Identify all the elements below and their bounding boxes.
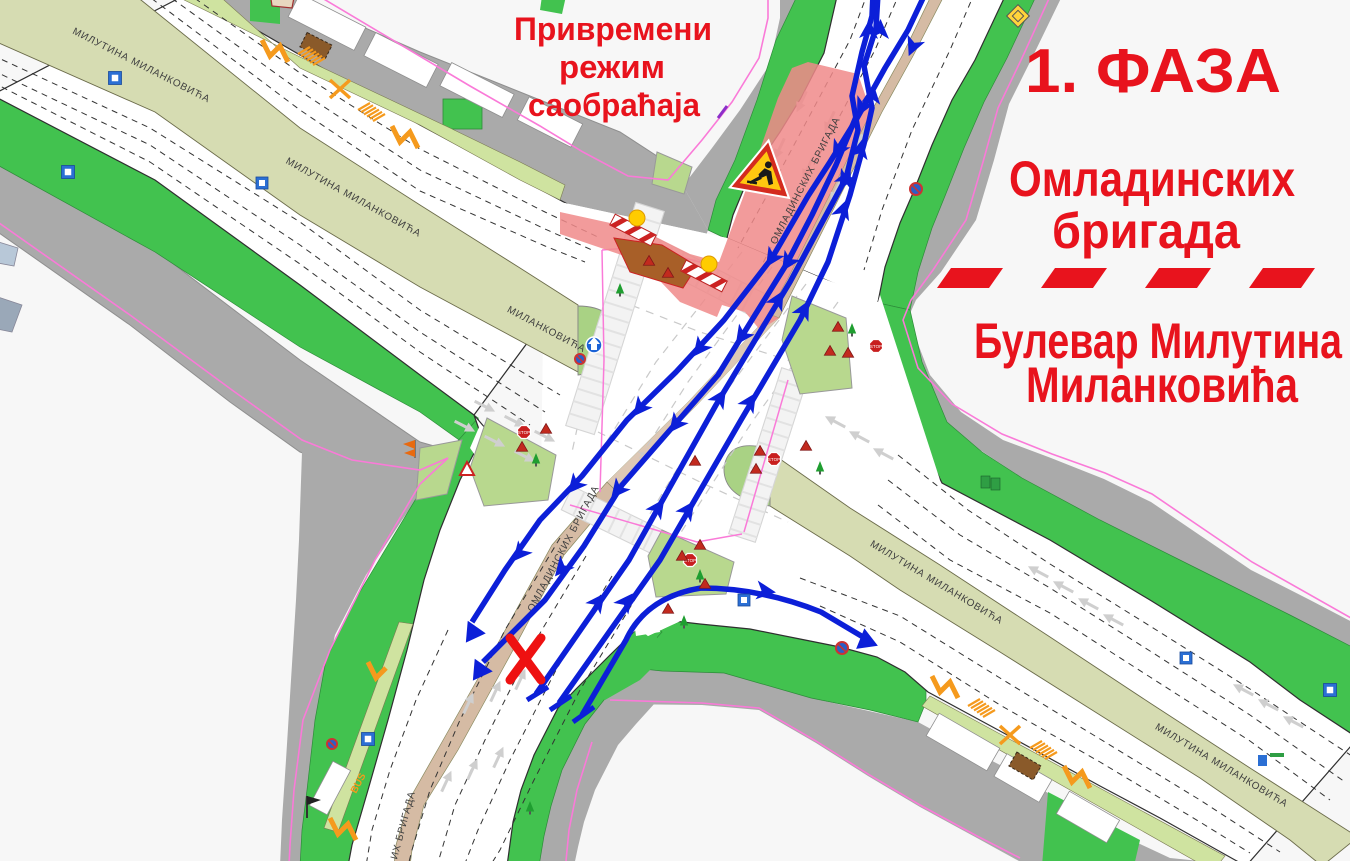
svg-text:Омладинских: Омладинских (1009, 151, 1295, 207)
svg-text:STOP: STOP (518, 430, 530, 435)
svg-text:Привремени: Привремени (514, 11, 712, 47)
svg-text:1. ФАЗА: 1. ФАЗА (1025, 37, 1281, 106)
svg-text:STOP: STOP (870, 344, 882, 349)
svg-text:режим: режим (559, 49, 665, 85)
svg-text:STOP: STOP (768, 457, 780, 462)
svg-text:саобраћаја: саобраћаја (528, 87, 700, 123)
svg-text:Миланковића: Миланковића (1026, 357, 1299, 413)
svg-text:бригада: бригада (1052, 203, 1241, 259)
